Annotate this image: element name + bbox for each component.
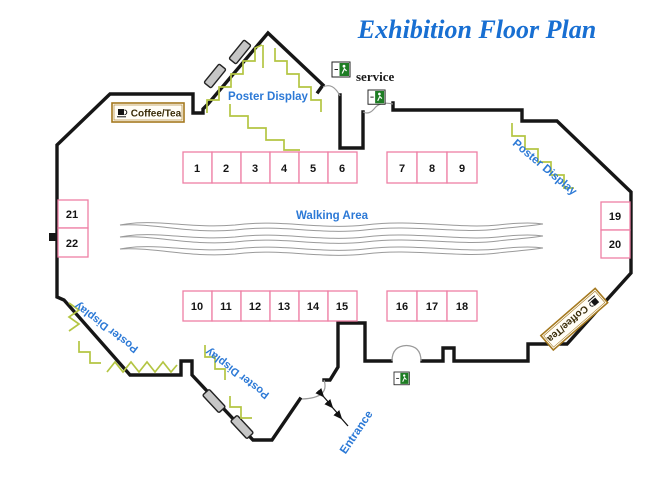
booth-9-number: 9 — [459, 163, 465, 175]
walking-area-label: Walking Area — [296, 210, 369, 222]
exit-icon — [368, 90, 385, 104]
booth-22-number: 22 — [66, 238, 78, 250]
coffee-tea-box-right: Coffee/Tea — [541, 288, 608, 350]
zigzag-left-bottom-steps — [79, 341, 101, 363]
booth-17-number: 17 — [426, 301, 438, 313]
entrance-arrow — [332, 407, 339, 415]
booth-12-number: 12 — [249, 301, 261, 313]
outer-walls — [49, 33, 631, 440]
coffee-tea-box-top: Coffee/Tea — [112, 103, 184, 122]
booth-15-number: 15 — [336, 301, 348, 313]
double-door-arc-right — [407, 346, 422, 362]
poster-display-right-label: Poster Display — [510, 137, 579, 198]
wave-line — [120, 235, 543, 239]
booth-16-number: 16 — [396, 301, 408, 313]
booth-20-number: 20 — [609, 239, 621, 251]
service-label: service — [356, 69, 394, 84]
exit-icon — [332, 62, 350, 77]
wall-entrance-stub — [324, 323, 391, 380]
wave-line — [120, 236, 543, 243]
exit-icon — [394, 372, 409, 385]
booth-8-number: 8 — [429, 163, 435, 175]
booth-1-number: 1 — [194, 163, 200, 175]
booth-19-number: 19 — [609, 211, 621, 223]
poster-display-top-label: Poster Display — [228, 91, 308, 103]
wall-tick — [49, 233, 57, 241]
coffee-tea-top-label: Coffee/Tea — [131, 109, 182, 120]
booths: 1 2 3 4 5 6 7 8 9 10 11 12 13 14 15 16 1… — [58, 152, 630, 321]
booth-13-number: 13 — [278, 301, 290, 313]
wave-line — [120, 247, 543, 251]
booth-4-number: 4 — [281, 163, 288, 175]
walking-area-waves — [120, 223, 543, 256]
entrance-arrow — [323, 396, 330, 404]
booth-5-number: 5 — [310, 163, 316, 175]
zigzag-peak-inner — [230, 104, 300, 150]
wall-service-stub — [340, 95, 363, 148]
booth-6-number: 6 — [339, 163, 345, 175]
entrance-arrows — [323, 396, 348, 426]
booth-10-number: 10 — [191, 301, 203, 313]
booth-3-number: 3 — [252, 163, 258, 175]
booth-21-number: 21 — [66, 209, 78, 221]
entrance-door-arc — [302, 380, 325, 399]
wave-line — [120, 248, 543, 255]
door-bottom-left-1 — [203, 389, 226, 413]
wave-line — [120, 224, 543, 231]
booth-11-number: 11 — [220, 301, 232, 313]
wall-right-lobe — [393, 103, 631, 361]
booth-7-number: 7 — [399, 163, 405, 175]
booth-14-number: 14 — [307, 301, 320, 313]
booth-18-number: 18 — [456, 301, 468, 313]
entrance-arrow — [341, 418, 348, 426]
entrance-label: Entrance — [338, 409, 375, 457]
page-title: Exhibition Floor Plan — [357, 15, 596, 44]
wave-line — [120, 223, 543, 227]
booth-2-number: 2 — [223, 163, 229, 175]
double-door-arc-left — [392, 346, 407, 362]
zigzag-left-bottom-saw — [107, 362, 177, 372]
floor-plan-canvas: Exhibition Floor Plan — [0, 0, 650, 484]
zigzag-bottom-center-lower — [230, 396, 252, 418]
service-door-arc-left — [323, 86, 340, 96]
exhibition-floor-plan: Exhibition Floor Plan — [0, 0, 650, 484]
